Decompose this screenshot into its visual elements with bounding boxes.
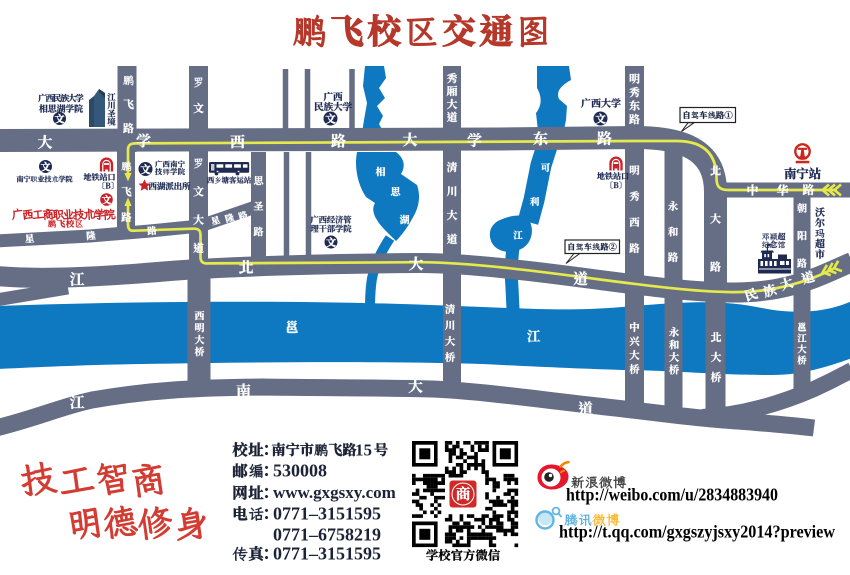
svg-text:530008: 530008: [273, 461, 327, 481]
svg-text:0771–3151595: 0771–3151595: [273, 504, 381, 524]
svg-text:http://weibo.com/u/2834883940: http://weibo.com/u/2834883940: [566, 485, 778, 505]
svg-text:0771–6758219: 0771–6758219: [273, 525, 381, 545]
svg-text:0771–3151595: 0771–3151595: [273, 544, 381, 564]
svg-text:http://t.qq.com/gxgszyjsxy2014: http://t.qq.com/gxgszyjsxy2014?preview: [559, 522, 835, 542]
svg-text:www.gxgsxy.com: www.gxgsxy.com: [273, 483, 396, 502]
svg-text:15: 15: [355, 441, 372, 460]
